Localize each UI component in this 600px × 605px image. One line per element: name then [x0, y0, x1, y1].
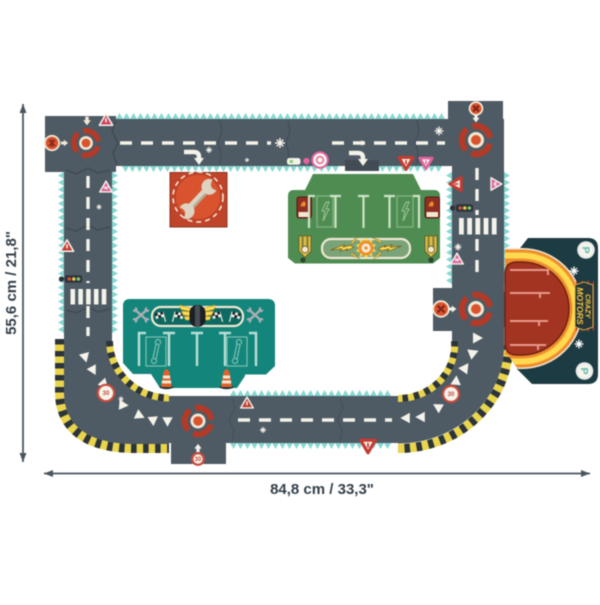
svg-text:55,6 cm / 21,8": 55,6 cm / 21,8"	[3, 231, 20, 335]
svg-text:84,8 cm / 33,3": 84,8 cm / 33,3"	[270, 481, 374, 498]
svg-text:MOTORS: MOTORS	[575, 287, 585, 324]
svg-text:P: P	[578, 367, 590, 374]
svg-text:30: 30	[103, 391, 110, 397]
svg-text:P: P	[580, 246, 592, 253]
svg-text:30: 30	[448, 392, 455, 398]
svg-text:30: 30	[195, 457, 202, 463]
